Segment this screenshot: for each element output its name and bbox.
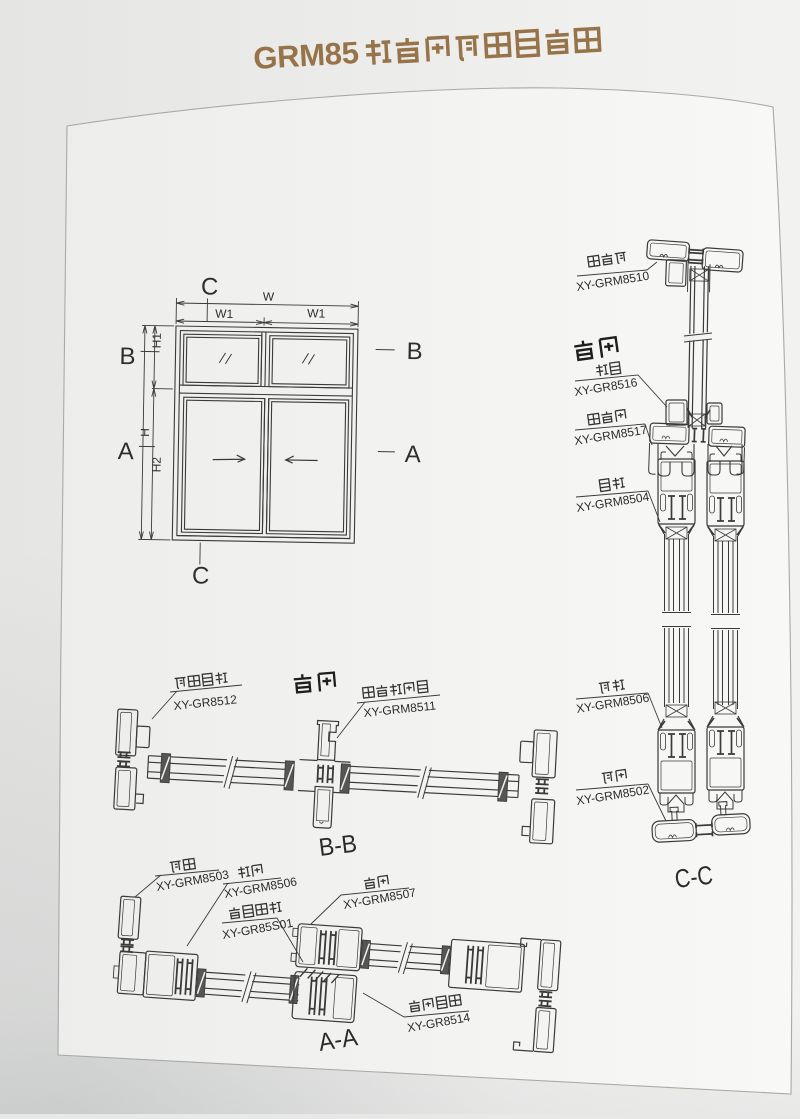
svg-text:C-C: C-C <box>673 860 714 894</box>
svg-text:H: H <box>138 428 152 437</box>
svg-text:H1: H1 <box>150 333 164 349</box>
svg-text:W1: W1 <box>215 307 234 321</box>
svg-text:A: A <box>405 441 421 468</box>
svg-text:A: A <box>118 438 134 465</box>
svg-text:B-B: B-B <box>317 830 358 862</box>
svg-text:C: C <box>201 273 219 300</box>
svg-text:C: C <box>192 562 210 589</box>
svg-text:B: B <box>406 338 422 365</box>
svg-text:W1: W1 <box>307 306 326 320</box>
svg-text:W: W <box>263 290 275 304</box>
svg-text:GRM85: GRM85 <box>252 35 359 76</box>
svg-text:B: B <box>119 343 135 370</box>
svg-text:H2: H2 <box>149 457 163 473</box>
